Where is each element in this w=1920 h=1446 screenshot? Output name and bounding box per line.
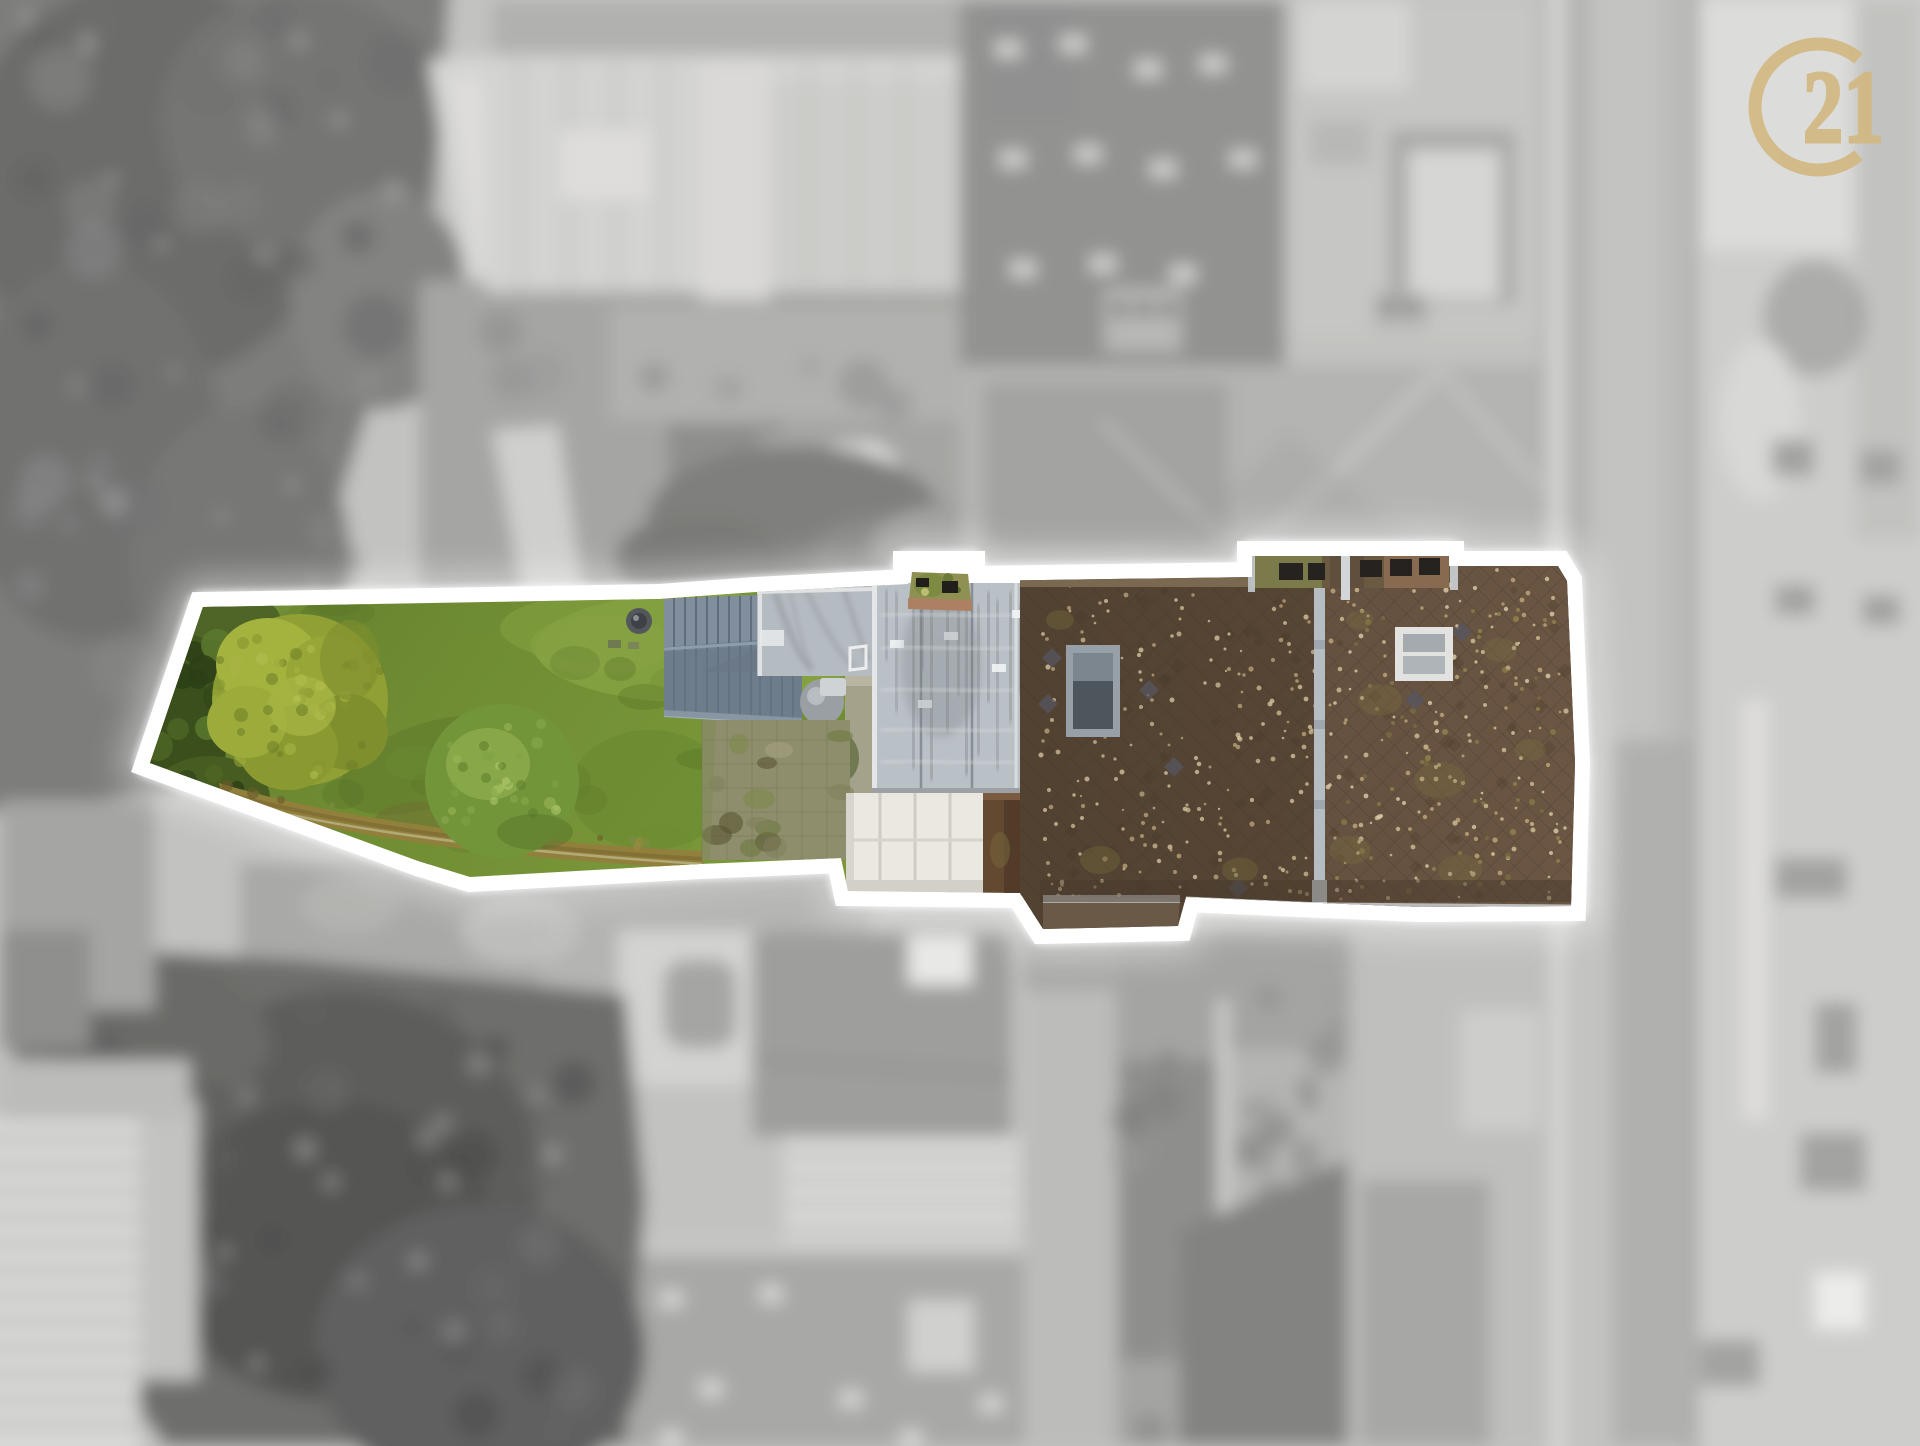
- svg-text:21: 21: [1803, 51, 1884, 166]
